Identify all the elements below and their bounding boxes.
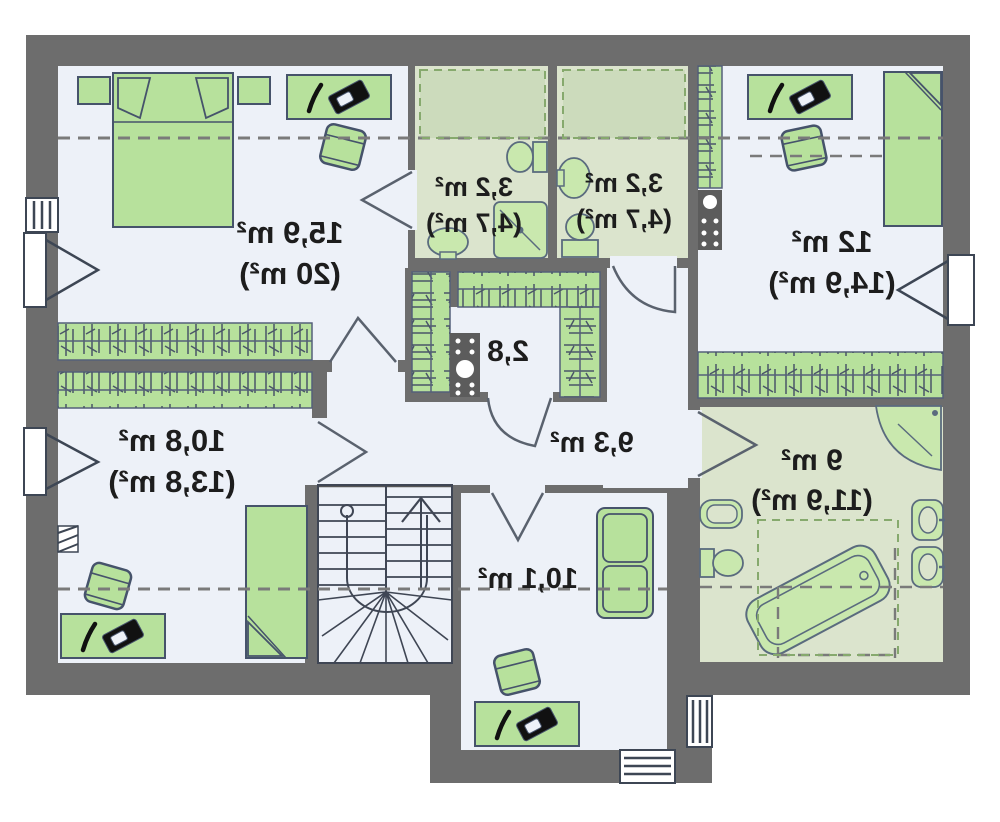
toilet-icon	[507, 142, 547, 172]
wall-east-corridor	[688, 66, 698, 410]
wall-bath-main-west	[688, 478, 700, 492]
wall-bedroom-bath-b	[408, 228, 415, 260]
label-bedroom-bottom-left-total: (13,8 m²)	[108, 464, 235, 499]
label-bedroom-top-left-total: (20 m²)	[239, 256, 341, 291]
desk-icon	[287, 75, 391, 119]
label-bedroom-top-right-total: (14,9 m²)	[768, 265, 895, 300]
opening-room-bl	[307, 418, 327, 485]
chimney-icon	[698, 190, 722, 250]
bed-icon	[113, 73, 233, 227]
opening-bedroom-tl	[332, 358, 398, 374]
opening-bath-main	[686, 410, 702, 478]
label-hallway: 9,3 m²	[550, 427, 634, 459]
label-walk-in-closet: 2,8	[487, 335, 529, 368]
desk-icon	[748, 75, 852, 119]
wall-closet-west	[405, 268, 412, 400]
low-ceiling-zone	[420, 70, 545, 138]
label-bath-small-left-area: 3,2 m²	[435, 172, 513, 202]
label-room-bottom-middle: 10,1 m²	[478, 563, 578, 595]
wall-return	[312, 372, 327, 418]
window-icon	[26, 198, 58, 232]
vent-hatch-icon	[58, 526, 78, 552]
chimney-icon	[450, 333, 480, 397]
desk-icon	[475, 702, 579, 746]
wall-bedroom-bath-a	[408, 66, 415, 172]
label-bath-small-right-total: (4,7 m²)	[576, 204, 672, 234]
label-bath-small-right-area: 3,2 m²	[585, 168, 663, 198]
opening-closet	[488, 390, 553, 404]
bed-icon	[246, 506, 307, 658]
label-bedroom-top-right-area: 12 m²	[792, 224, 873, 259]
label-bathroom-main-area: 9 m²	[781, 444, 843, 477]
wall-between-baths	[548, 66, 557, 260]
shelf-icon	[698, 66, 722, 188]
bed-icon	[884, 72, 942, 226]
label-bedroom-top-left-area: 15,9 m²	[237, 215, 344, 250]
window-icon	[620, 750, 675, 783]
toilet-icon	[700, 549, 743, 577]
chair-icon	[493, 648, 541, 696]
sink-icon	[912, 547, 945, 587]
label-bedroom-bottom-left-area: 10,8 m²	[119, 423, 226, 458]
floor-plan-drawing: 15,9 m² (20 m²) 3,2 m² (4,7 m²) 3,2 m² (…	[0, 0, 1000, 822]
opening-bath-a	[406, 170, 417, 230]
desk-icon	[61, 614, 165, 658]
nightstand-icon	[78, 77, 110, 104]
opening-bath-b	[610, 256, 677, 270]
wardrobe-rail-icon	[698, 352, 943, 398]
wardrobe-rail-icon	[560, 307, 600, 397]
floor-plan-page: 15,9 m² (20 m²) 3,2 m² (4,7 m²) 3,2 m² (…	[0, 0, 1000, 822]
wardrobe-rail-icon	[458, 272, 600, 307]
sofa-icon	[597, 508, 653, 618]
chair-icon	[319, 123, 367, 171]
opening-room-middle	[490, 483, 545, 495]
bidet-icon	[700, 500, 742, 528]
sink-icon	[912, 500, 945, 540]
low-ceiling-zone	[563, 70, 685, 138]
wardrobe-rail-icon	[58, 372, 312, 408]
label-bath-small-left-total: (4,7 m²)	[426, 208, 522, 238]
chair-icon	[780, 124, 827, 171]
wardrobe-rail-icon	[58, 323, 312, 360]
nightstand-icon	[238, 77, 270, 104]
wall-wardrobe-divider	[26, 360, 332, 372]
wall-baths-south-a	[408, 258, 610, 268]
wardrobe-rail-icon	[412, 272, 450, 392]
label-bathroom-main-total: (11,9 m²)	[751, 484, 873, 517]
window-icon	[687, 696, 712, 747]
